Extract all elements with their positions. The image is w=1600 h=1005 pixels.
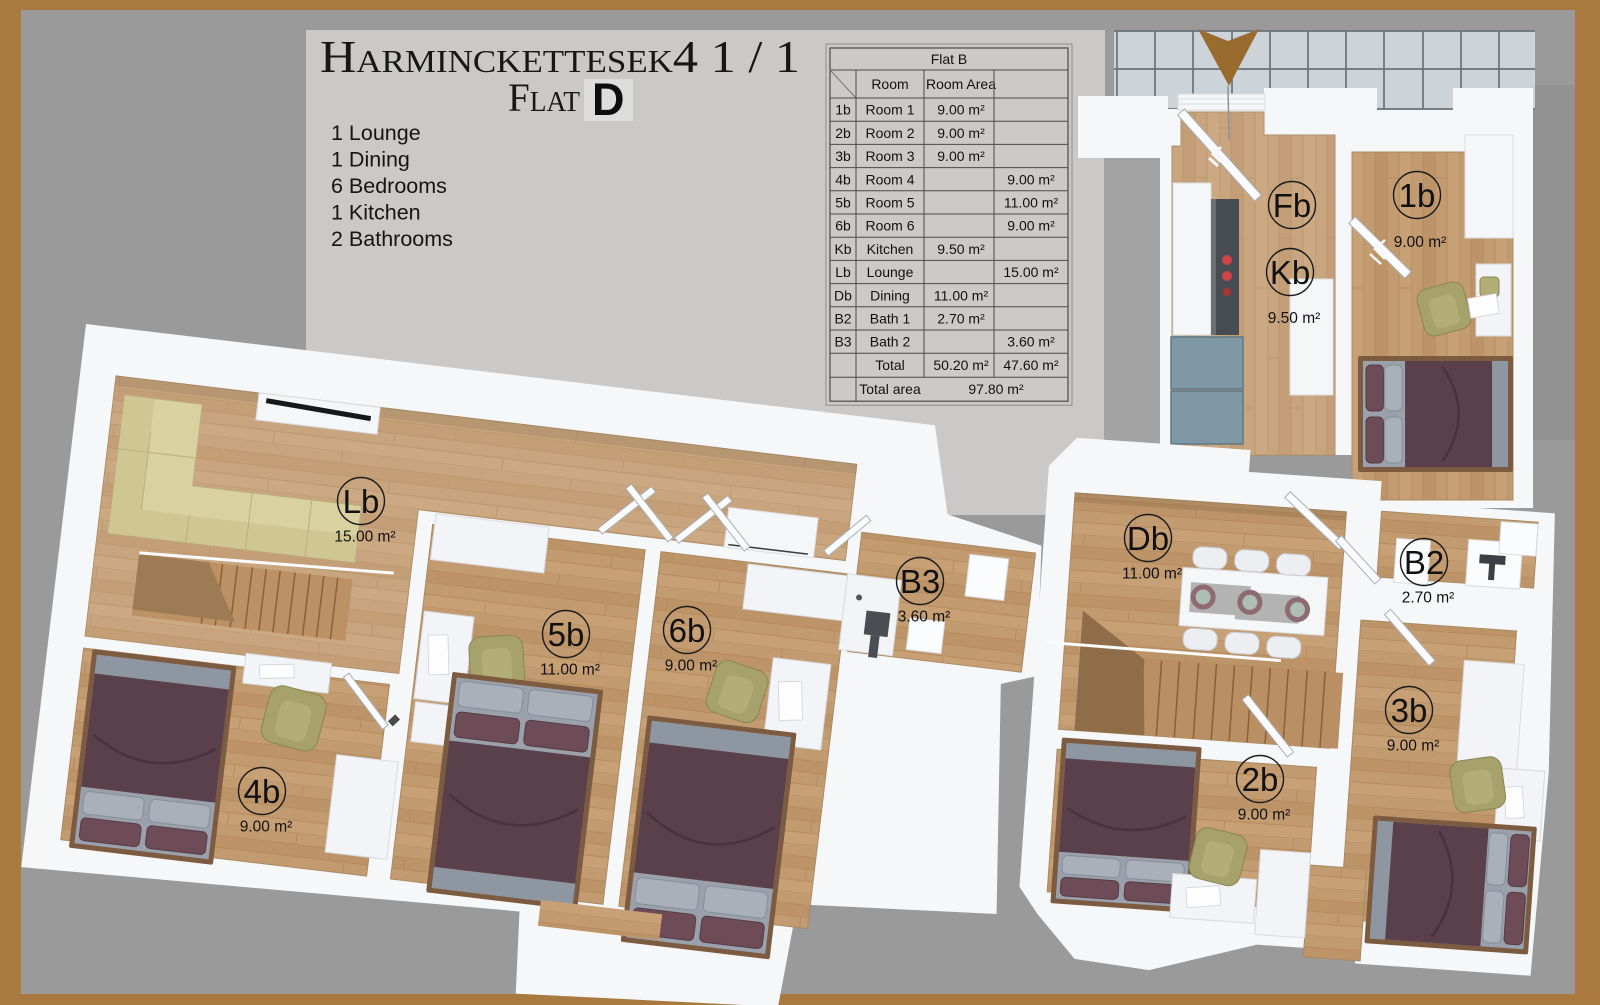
svg-text:50.20 m²: 50.20 m² (933, 357, 989, 373)
svg-text:9.00 m²: 9.00 m² (1238, 807, 1291, 824)
svg-text:D: D (592, 74, 625, 125)
svg-text:9.00 m²: 9.00 m² (937, 148, 985, 164)
svg-text:9.00 m²: 9.00 m² (1394, 234, 1447, 251)
svg-text:11.00 m²: 11.00 m² (934, 287, 989, 303)
svg-text:B3: B3 (900, 563, 940, 600)
svg-text:Db: Db (1127, 520, 1169, 557)
svg-text:1 Kitchen: 1 Kitchen (331, 201, 421, 225)
svg-text:9.00 m²: 9.00 m² (937, 125, 985, 141)
svg-text:Room 5: Room 5 (865, 195, 914, 211)
svg-text:B2: B2 (1404, 544, 1444, 581)
svg-text:11.00 m²: 11.00 m² (1004, 195, 1059, 211)
svg-text:2.70 m²: 2.70 m² (1402, 590, 1455, 607)
svg-text:Lb: Lb (343, 483, 380, 520)
svg-text:Flat B: Flat B (931, 51, 968, 67)
svg-text:11.00 m²: 11.00 m² (540, 662, 600, 679)
svg-text:Kb: Kb (1270, 254, 1310, 291)
svg-text:2 Bathrooms: 2 Bathrooms (331, 227, 453, 251)
svg-text:Room Area: Room Area (926, 76, 996, 92)
svg-text:5b: 5b (835, 195, 851, 211)
svg-text:2.70 m²: 2.70 m² (937, 311, 985, 327)
svg-text:Kb: Kb (834, 241, 851, 257)
svg-text:9.50 m²: 9.50 m² (937, 241, 985, 257)
svg-text:B2: B2 (834, 311, 851, 327)
svg-text:1 Lounge: 1 Lounge (331, 121, 421, 145)
svg-text:9.00 m²: 9.00 m² (240, 819, 293, 836)
svg-text:3b: 3b (835, 148, 851, 164)
svg-text:3.60 m²: 3.60 m² (1007, 334, 1055, 350)
svg-text:Bath 2: Bath 2 (870, 334, 911, 350)
svg-text:B3: B3 (834, 334, 851, 350)
svg-text:Room 6: Room 6 (865, 218, 914, 234)
svg-text:4b: 4b (244, 773, 281, 810)
svg-text:Lb: Lb (835, 264, 851, 280)
svg-text:2b: 2b (835, 125, 851, 141)
svg-text:47.60 m²: 47.60 m² (1003, 357, 1059, 373)
svg-text:9.00 m²: 9.00 m² (1387, 738, 1440, 755)
svg-text:1b: 1b (1399, 177, 1436, 214)
svg-text:15.00 m²: 15.00 m² (1003, 264, 1059, 280)
svg-text:Room 3: Room 3 (865, 148, 914, 164)
svg-text:Room 2: Room 2 (865, 125, 914, 141)
svg-text:11.00 m²: 11.00 m² (1122, 566, 1182, 583)
svg-text:Room: Room (871, 76, 908, 92)
svg-text:Flat: Flat (508, 75, 580, 120)
svg-text:6b: 6b (835, 218, 851, 234)
svg-text:9.00 m²: 9.00 m² (937, 102, 985, 118)
svg-text:Room 1: Room 1 (865, 102, 914, 118)
svg-text:9.00 m²: 9.00 m² (665, 658, 718, 675)
svg-text:1b: 1b (835, 102, 851, 118)
svg-text:Kitchen: Kitchen (867, 241, 914, 257)
svg-text:Bath 1: Bath 1 (870, 311, 911, 327)
svg-text:1 Dining: 1 Dining (331, 148, 410, 172)
svg-text:97.80 m²: 97.80 m² (968, 381, 1024, 397)
svg-text:6 Bedrooms: 6 Bedrooms (331, 174, 447, 198)
svg-text:Dining: Dining (870, 287, 910, 303)
svg-text:Total area: Total area (859, 381, 921, 397)
svg-text:6b: 6b (669, 612, 706, 649)
svg-text:3.60 m²: 3.60 m² (898, 609, 951, 626)
svg-text:3b: 3b (1391, 692, 1428, 729)
svg-text:9.00 m²: 9.00 m² (1007, 218, 1055, 234)
svg-text:Db: Db (834, 287, 852, 303)
svg-text:9.00 m²: 9.00 m² (1007, 171, 1055, 187)
svg-text:15.00 m²: 15.00 m² (334, 529, 395, 546)
svg-text:Lounge: Lounge (867, 264, 914, 280)
svg-text:9.50 m²: 9.50 m² (1268, 310, 1321, 327)
svg-text:Total: Total (875, 357, 905, 373)
svg-text:4b: 4b (835, 171, 851, 187)
svg-text:Fb: Fb (1273, 187, 1312, 224)
svg-text:Room 4: Room 4 (865, 171, 914, 187)
svg-text:2b: 2b (1242, 761, 1279, 798)
svg-text:5b: 5b (548, 616, 585, 653)
